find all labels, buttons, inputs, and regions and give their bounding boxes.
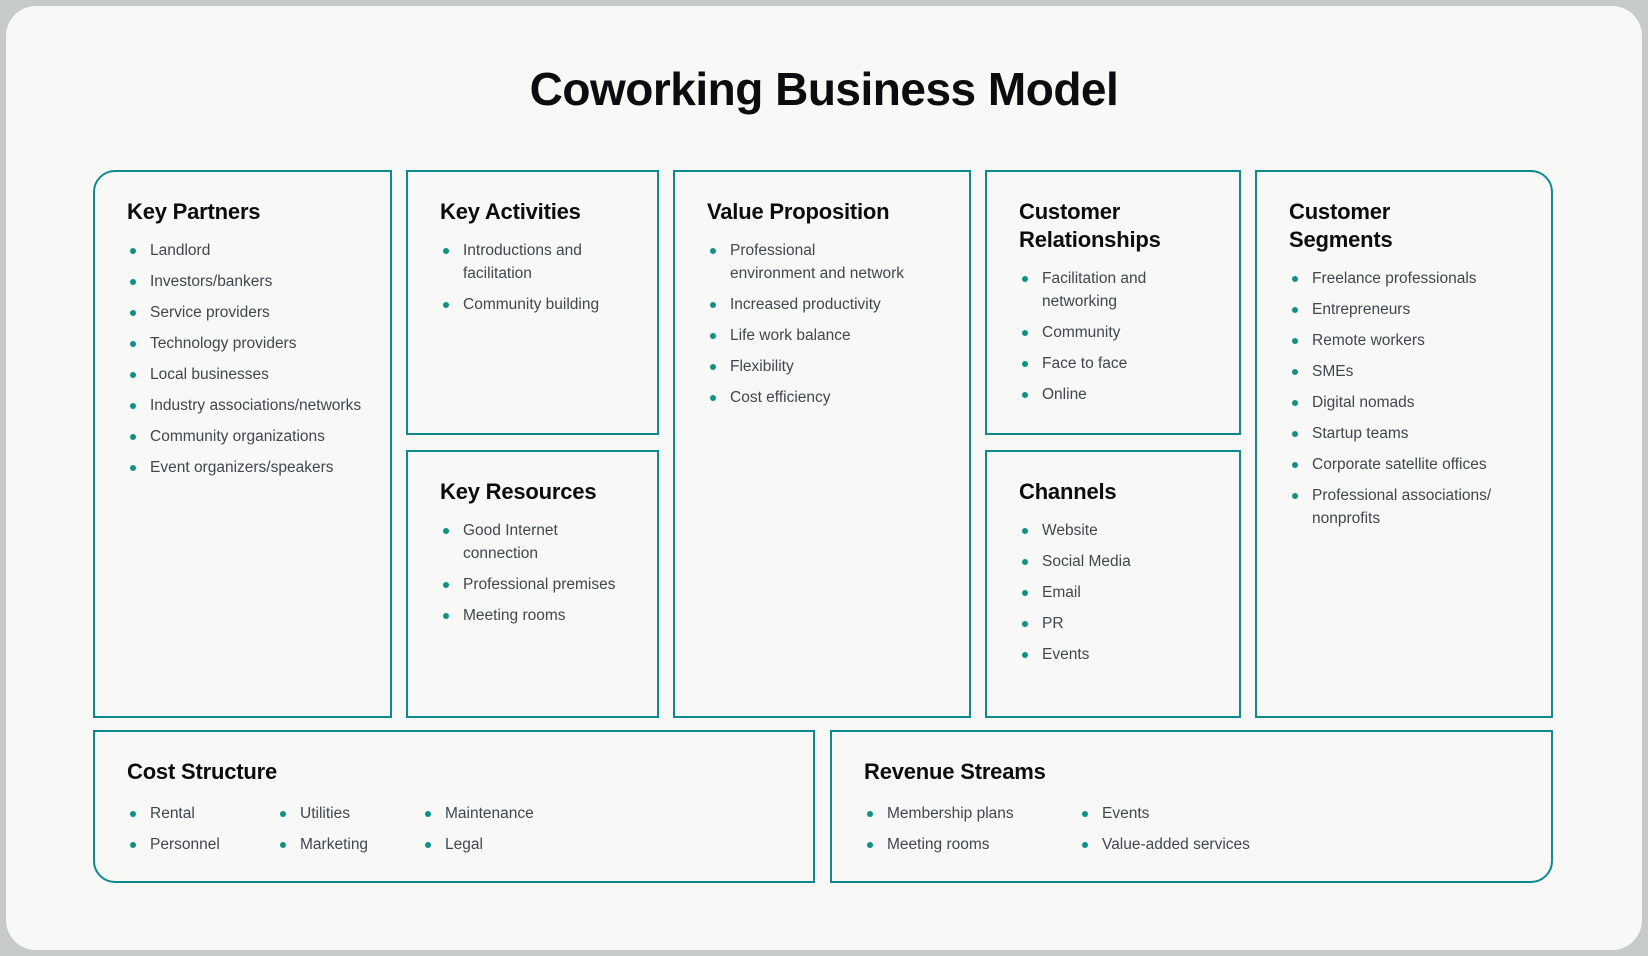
list-item: Professional environment and network: [707, 239, 949, 285]
list-item: Meeting rooms: [864, 833, 1079, 856]
list-item: Life work balance: [707, 324, 949, 347]
list-item: Events: [1079, 802, 1250, 825]
canvas-top-grid: Key Partners Landlord Investors/bankers …: [93, 170, 1553, 718]
list-item: Introductions and facilitation: [440, 239, 637, 285]
list-item: Email: [1019, 581, 1219, 604]
list-item: Technology providers: [127, 332, 370, 355]
revenue-streams-columns: Membership plans Meeting rooms Events Va…: [864, 799, 1531, 864]
box-title-customer-relationships: Customer Relationships: [1019, 198, 1219, 254]
key-resources-list: Good Internet connection Professional pr…: [440, 519, 637, 627]
key-partners-list: Landlord Investors/bankers Service provi…: [127, 239, 370, 479]
list-item: Online: [1019, 383, 1219, 406]
list-item: Corporate satellite offices: [1289, 453, 1531, 476]
list-item: Landlord: [127, 239, 370, 262]
list-item: Professional associations/​nonprofits: [1289, 484, 1531, 530]
list-item: Event organizers/speakers: [127, 456, 370, 479]
revenue-streams-col-2: Events Value-added services: [1079, 802, 1250, 864]
box-title-channels: Channels: [1019, 478, 1219, 506]
canvas-card: Coworking Business Model Key Partners La…: [6, 6, 1642, 950]
page: { "title": "Coworking Business Model", "…: [0, 0, 1648, 956]
list-item: Investors/bankers: [127, 270, 370, 293]
column-activities-resources: Key Activities Introductions and facilit…: [406, 170, 659, 718]
list-item: Face to face: [1019, 352, 1219, 375]
list-item: Maintenance: [422, 802, 534, 825]
list-item: Legal: [422, 833, 534, 856]
list-item: PR: [1019, 612, 1219, 635]
box-channels: Channels Website Social Media Email PR E…: [985, 450, 1241, 718]
list-item: Utilities: [277, 802, 422, 825]
list-item: Community: [1019, 321, 1219, 344]
box-cost-structure: Cost Structure Rental Personnel Utilitie…: [93, 730, 815, 883]
column-relationships-channels: Customer Relationships Facilitation and …: [985, 170, 1241, 718]
box-title-value-proposition: Value Proposition: [707, 198, 949, 226]
list-item: Local businesses: [127, 363, 370, 386]
list-item: Website: [1019, 519, 1219, 542]
list-item: Entrepreneurs: [1289, 298, 1531, 321]
cost-structure-columns: Rental Personnel Utilities Marketing Mai…: [127, 799, 793, 864]
list-item: Rental: [127, 802, 277, 825]
cost-structure-col-3: Maintenance Legal: [422, 802, 534, 864]
box-title-key-resources: Key Resources: [440, 478, 637, 506]
list-item: Membership plans: [864, 802, 1079, 825]
list-item: Meeting rooms: [440, 604, 637, 627]
list-item: Personnel: [127, 833, 277, 856]
list-item: Marketing: [277, 833, 422, 856]
list-item: Service providers: [127, 301, 370, 324]
list-item: Cost efficiency: [707, 386, 949, 409]
box-key-partners: Key Partners Landlord Investors/bankers …: [93, 170, 392, 718]
list-item: Community building: [440, 293, 637, 316]
list-item: Industry associations/​networks: [127, 394, 370, 417]
channels-list: Website Social Media Email PR Events: [1019, 519, 1219, 666]
customer-relationships-list: Facilitation and networking Community Fa…: [1019, 267, 1219, 406]
list-item: Flexibility: [707, 355, 949, 378]
value-proposition-list: Professional environment and network Inc…: [707, 239, 949, 409]
list-item: Digital nomads: [1289, 391, 1531, 414]
box-title-key-partners: Key Partners: [127, 198, 370, 226]
box-value-proposition: Value Proposition Professional environme…: [673, 170, 971, 718]
box-key-activities: Key Activities Introductions and facilit…: [406, 170, 659, 435]
box-title-customer-segments: Customer Segments: [1289, 198, 1531, 254]
list-item: SMEs: [1289, 360, 1531, 383]
list-item: Freelance professionals: [1289, 267, 1531, 290]
cost-structure-col-2: Utilities Marketing: [277, 802, 422, 864]
list-item: Value-added services: [1079, 833, 1250, 856]
page-title: Coworking Business Model: [6, 62, 1642, 116]
box-customer-segments: Customer Segments Freelance professional…: [1255, 170, 1553, 718]
cost-structure-col-1: Rental Personnel: [127, 802, 277, 864]
list-item: Community organizations: [127, 425, 370, 448]
list-item: Social Media: [1019, 550, 1219, 573]
box-title-key-activities: Key Activities: [440, 198, 637, 226]
list-item: Increased productivity: [707, 293, 949, 316]
list-item: Professional premises: [440, 573, 637, 596]
canvas-bottom-grid: Cost Structure Rental Personnel Utilitie…: [93, 730, 1553, 883]
box-revenue-streams: Revenue Streams Membership plans Meeting…: [830, 730, 1553, 883]
list-item: Remote workers: [1289, 329, 1531, 352]
business-model-canvas: Key Partners Landlord Investors/bankers …: [93, 170, 1553, 883]
box-title-revenue-streams: Revenue Streams: [864, 758, 1531, 786]
box-customer-relationships: Customer Relationships Facilitation and …: [985, 170, 1241, 435]
list-item: Good Internet connection: [440, 519, 637, 565]
revenue-streams-col-1: Membership plans Meeting rooms: [864, 802, 1079, 864]
list-item: Events: [1019, 643, 1219, 666]
list-item: Facilitation and networking: [1019, 267, 1219, 313]
key-activities-list: Introductions and facilitation Community…: [440, 239, 637, 316]
box-key-resources: Key Resources Good Internet connection P…: [406, 450, 659, 718]
list-item: Startup teams: [1289, 422, 1531, 445]
box-title-cost-structure: Cost Structure: [127, 758, 793, 786]
customer-segments-list: Freelance professionals Entrepreneurs Re…: [1289, 267, 1531, 530]
